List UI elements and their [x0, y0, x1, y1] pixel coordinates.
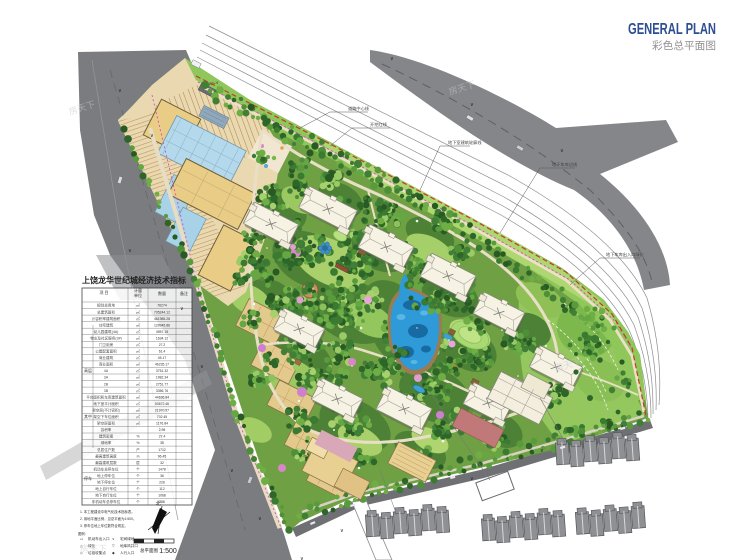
svg-text:35: 35 [160, 441, 164, 445]
svg-text:绿地率: 绿地率 [101, 440, 112, 445]
svg-text:机动车总停车位: 机动车总停车位 [93, 466, 119, 471]
svg-text:房天下: 房天下 [80, 543, 107, 554]
svg-text:∨: ∨ [200, 364, 204, 370]
svg-text:461985.28: 461985.28 [154, 317, 170, 321]
svg-text:地上自行车位: 地上自行车位 [95, 486, 117, 491]
svg-text:705244.12: 705244.12 [154, 310, 170, 314]
svg-text:∨: ∨ [230, 468, 234, 474]
svg-text:3356.76: 3356.76 [156, 389, 168, 393]
svg-text:非机动车总停车位: 非机动车总停车位 [92, 499, 121, 504]
svg-text:数量: 数量 [158, 290, 166, 296]
svg-text:地库风井口: 地库风井口 [120, 543, 138, 548]
svg-text:总平面图: 总平面图 [140, 547, 158, 554]
svg-text:1176.84: 1176.84 [156, 422, 168, 426]
svg-text:1712: 1712 [158, 448, 166, 452]
svg-text:∨: ∨ [540, 448, 544, 454]
svg-text:%: % [136, 441, 139, 445]
svg-text:地下自行车位: 地下自行车位 [95, 493, 117, 498]
svg-text:架空下车位面积: 架空下车位面积 [93, 414, 119, 419]
svg-text:∨: ∨ [470, 476, 474, 482]
svg-text:建筑密度: 建筑密度 [99, 434, 114, 439]
svg-text:户: 户 [136, 447, 139, 452]
svg-text:76274: 76274 [157, 304, 167, 308]
svg-text:2751.77: 2751.77 [156, 382, 168, 386]
svg-text:门卫用房: 门卫用房 [99, 342, 114, 347]
svg-text:∨: ∨ [150, 133, 154, 139]
svg-text:▭: ▭ [80, 537, 84, 541]
svg-text:机动车出入口: 机动车出入口 [88, 536, 110, 541]
svg-text:∨: ∨ [390, 56, 394, 62]
svg-text:项 目: 项 目 [99, 289, 108, 295]
svg-text:最高建筑层数: 最高建筑层数 [95, 460, 117, 465]
svg-text:36: 36 [160, 474, 164, 478]
svg-text:2.98: 2.98 [159, 428, 166, 432]
svg-text:地上停车位: 地上停车位 [97, 473, 115, 478]
svg-text:地下停车位: 地下停车位 [97, 480, 115, 485]
svg-text:61.4: 61.4 [159, 350, 166, 354]
svg-text:高层: 高层 [84, 367, 92, 373]
svg-text:北: 北 [155, 500, 160, 507]
svg-text:45.17: 45.17 [158, 356, 167, 360]
svg-text:公建配套面积: 公建配套面积 [95, 349, 117, 354]
svg-text:GENERAL PLAN: GENERAL PLAN [628, 21, 716, 38]
svg-text:∨: ∨ [470, 102, 474, 108]
svg-text:宅间绿地: 宅间绿地 [120, 536, 135, 541]
svg-text:1982.34: 1982.34 [156, 376, 168, 380]
svg-text:∨: ∨ [300, 556, 304, 560]
svg-text:∨: ∨ [340, 528, 344, 534]
svg-text:1634.12: 1634.12 [156, 337, 168, 341]
svg-text:总居住户数: 总居住户数 [97, 447, 115, 452]
svg-text:容积率: 容积率 [101, 427, 112, 432]
svg-text:备注: 备注 [180, 290, 188, 296]
svg-text:∨: ∨ [128, 248, 132, 254]
svg-text:地下车库边线: 地下车库边线 [552, 161, 578, 168]
svg-text:架空层面积: 架空层面积 [97, 421, 115, 426]
svg-text:46235.17: 46235.17 [155, 363, 169, 367]
svg-text:∨: ∨ [180, 306, 184, 312]
svg-text:停车: 停车 [84, 475, 92, 481]
svg-text:其中: 其中 [84, 413, 92, 419]
svg-text:2. 用地平面比例，见总平面为1:500。: 2. 用地平面比例，见总平面为1:500。 [80, 516, 136, 521]
svg-text:平台面积和车库建筑面积: 平台面积和车库建筑面积 [86, 394, 126, 399]
svg-text:%: % [136, 435, 139, 439]
svg-text:96.45: 96.45 [158, 454, 167, 458]
svg-text:上饶龙华世纪城经济技术指标: 上饶龙华世纪城经济技术指标 [82, 275, 186, 285]
svg-text:总建筑面积: 总建筑面积 [97, 309, 115, 314]
svg-text:地下室建筑轮廓线: 地下室建筑轮廓线 [448, 139, 482, 146]
svg-text:3. 停车位地上车位数符合规定。: 3. 停车位地上车位数符合规定。 [80, 523, 128, 528]
svg-text:1:500: 1:500 [159, 548, 177, 555]
svg-text:226: 226 [159, 481, 165, 485]
svg-text:地下车库出入口绿化: 地下车库出入口绿化 [606, 251, 645, 258]
svg-text:物业及社区服务(3#): 物业及社区服务(3#) [90, 336, 122, 341]
svg-text:人行入口: 人行入口 [120, 550, 135, 555]
svg-text:彩色总平面图: 彩色总平面图 [652, 39, 716, 52]
svg-text:住宅建筑: 住宅建筑 [99, 322, 114, 327]
svg-text:m: m [137, 454, 140, 458]
svg-text:27.4: 27.4 [159, 435, 166, 439]
svg-text:2B: 2B [104, 382, 109, 386]
svg-text:702.45: 702.45 [157, 415, 167, 419]
svg-text:1478: 1478 [158, 467, 166, 471]
svg-text:21970.57: 21970.57 [155, 409, 169, 413]
svg-text:∨: ∨ [560, 148, 564, 154]
svg-text:规划总用地: 规划总用地 [97, 303, 115, 308]
svg-text:开挖红线: 开挖红线 [370, 121, 388, 128]
svg-text:4957.15: 4957.15 [156, 330, 168, 334]
svg-text:44636.84: 44636.84 [155, 395, 169, 399]
svg-text:最高建筑高度: 最高建筑高度 [95, 453, 117, 458]
svg-text:架空层(不计容积): 架空层(不计容积) [92, 408, 120, 413]
svg-text:53672.46: 53672.46 [155, 402, 169, 406]
svg-text:112: 112 [159, 487, 165, 491]
svg-text:27.2: 27.2 [159, 343, 166, 347]
svg-text:图例:: 图例: [78, 531, 86, 536]
svg-text:3751.32: 3751.32 [156, 369, 168, 373]
svg-text:地下室平计面积: 地下室平计面积 [93, 401, 119, 406]
svg-text:∨: ∨ [258, 516, 262, 522]
svg-text:计容积率建筑面积: 计容积率建筑面积 [92, 316, 121, 321]
svg-text:商业面积: 商业面积 [99, 362, 114, 367]
svg-text:1. 本工程建设中电气化技术指标表。: 1. 本工程建设中电气化技术指标表。 [80, 509, 135, 514]
svg-text:商业建筑: 商业建筑 [99, 355, 114, 360]
svg-text:3A: 3A [104, 376, 109, 380]
svg-text:单位: 单位 [134, 292, 142, 298]
svg-text:4A: 4A [104, 369, 109, 373]
svg-text:∨: ∨ [118, 88, 122, 94]
svg-text:129945.86: 129945.86 [154, 323, 170, 327]
svg-text:32: 32 [160, 461, 164, 465]
svg-text:∨: ∨ [112, 537, 115, 541]
svg-text:幼儿园建筑(4A): 幼儿园建筑(4A) [94, 329, 119, 334]
svg-text:道路中心线: 道路中心线 [348, 105, 370, 112]
svg-text:1068: 1068 [158, 494, 166, 498]
svg-text:3B: 3B [104, 389, 109, 393]
